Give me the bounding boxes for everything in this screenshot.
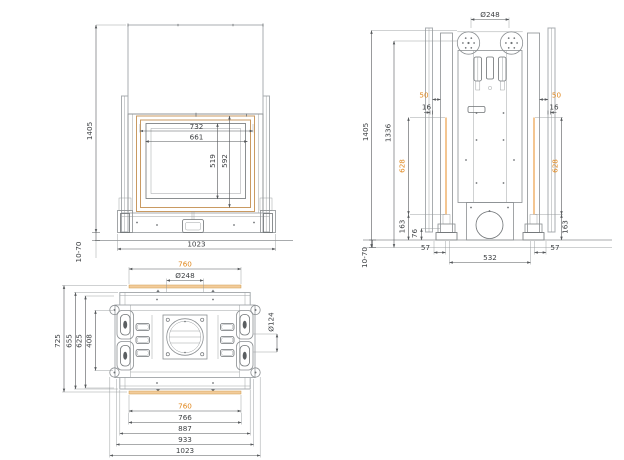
top-view: 760 Ø248 725 655 625 408 Ø124 760 bbox=[53, 260, 277, 458]
front-control-box bbox=[183, 211, 204, 233]
top-flue-assembly bbox=[163, 315, 207, 359]
dim-front-overall-width: 1023 bbox=[187, 240, 205, 249]
dim-top-plate-width: 887 bbox=[178, 424, 192, 433]
fireplace-dimension-drawing: 1405 10-70 732 661 519 592 1023 bbox=[0, 0, 624, 460]
dim-side-flue-diameter: Ø248 bbox=[480, 10, 500, 19]
dim-top-body-width: 933 bbox=[178, 435, 192, 444]
dim-side-gap-left: 16 bbox=[422, 103, 432, 112]
front-view: 1405 10-70 732 661 519 592 1023 bbox=[74, 24, 293, 263]
front-base-screws bbox=[136, 222, 255, 226]
dim-side-wall-offset-right: 50 bbox=[552, 91, 562, 100]
top-right-latches bbox=[237, 311, 254, 371]
dim-side-base-left: 163 bbox=[398, 220, 407, 234]
dim-top-flue-diameter: Ø248 bbox=[175, 271, 195, 280]
front-left-foot bbox=[118, 198, 133, 233]
side-panel-slot bbox=[468, 107, 485, 113]
side-center-panel bbox=[458, 51, 522, 203]
side-left-foot bbox=[436, 215, 457, 241]
dim-top-overall-depth: 725 bbox=[53, 334, 62, 348]
dim-top-gasket-width-top: 760 bbox=[178, 260, 192, 269]
dim-front-frame-width: 732 bbox=[190, 122, 204, 131]
side-duct-opening bbox=[476, 212, 503, 239]
top-gasket-front bbox=[129, 285, 241, 288]
top-view-body bbox=[110, 285, 260, 394]
dim-side-overall-height: 1405 bbox=[361, 123, 370, 141]
dim-side-duct-height: 76 bbox=[410, 229, 419, 239]
dim-front-overall-height: 1405 bbox=[85, 122, 94, 140]
dim-front-frame-height: 592 bbox=[220, 154, 229, 168]
side-right-foot bbox=[523, 215, 544, 241]
dim-side-floor-gap: 10-70 bbox=[360, 247, 369, 268]
dim-side-depth-rear: 57 bbox=[550, 243, 559, 252]
dim-top-inner-depth: 625 bbox=[75, 334, 84, 348]
top-front-plate bbox=[120, 293, 250, 306]
side-panel-screws bbox=[465, 112, 515, 184]
dim-top-roller-diameter: Ø124 bbox=[267, 312, 276, 332]
top-gasket-rear bbox=[129, 391, 241, 394]
front-hood bbox=[128, 25, 263, 114]
side-dimensions: Ø248 1405 1336 50 50 16 16 628 628 bbox=[360, 10, 570, 268]
top-corner-posts bbox=[110, 305, 260, 377]
dim-top-opening-width: 766 bbox=[178, 413, 192, 422]
dim-front-floor-gap: 10-70 bbox=[74, 241, 83, 262]
dim-side-gap-right: 16 bbox=[549, 103, 559, 112]
front-base bbox=[122, 213, 270, 233]
side-duct-box bbox=[467, 203, 514, 241]
technical-drawing-page: 1405 10-70 732 661 519 592 1023 bbox=[0, 0, 624, 460]
top-left-vents bbox=[136, 324, 150, 357]
side-hanger-slots bbox=[474, 57, 506, 90]
dim-side-rail-left: 628 bbox=[398, 159, 407, 173]
side-view: Ø248 1405 1336 50 50 16 16 628 628 bbox=[360, 10, 612, 268]
top-left-latches bbox=[117, 311, 134, 371]
top-right-vents bbox=[221, 324, 235, 357]
dim-side-body-depth: 532 bbox=[483, 253, 497, 262]
dim-top-overall-width: 1023 bbox=[176, 446, 194, 455]
dim-top-gasket-width-bottom: 760 bbox=[178, 402, 192, 411]
dim-top-latch-span: 408 bbox=[85, 334, 94, 348]
dim-front-glass-height: 519 bbox=[208, 154, 217, 168]
dim-top-plate-depth: 655 bbox=[65, 334, 74, 348]
dim-side-depth-front: 57 bbox=[421, 243, 430, 252]
dim-side-base-right: 163 bbox=[561, 220, 570, 234]
side-view-body bbox=[363, 28, 612, 248]
dim-front-glass-width: 661 bbox=[190, 132, 204, 141]
front-right-foot bbox=[260, 198, 276, 233]
dim-side-frame-height: 1336 bbox=[384, 123, 393, 142]
top-rear-plate bbox=[120, 378, 250, 390]
dim-side-wall-offset-left: 50 bbox=[419, 91, 429, 100]
dim-side-rail-right: 628 bbox=[551, 159, 560, 173]
